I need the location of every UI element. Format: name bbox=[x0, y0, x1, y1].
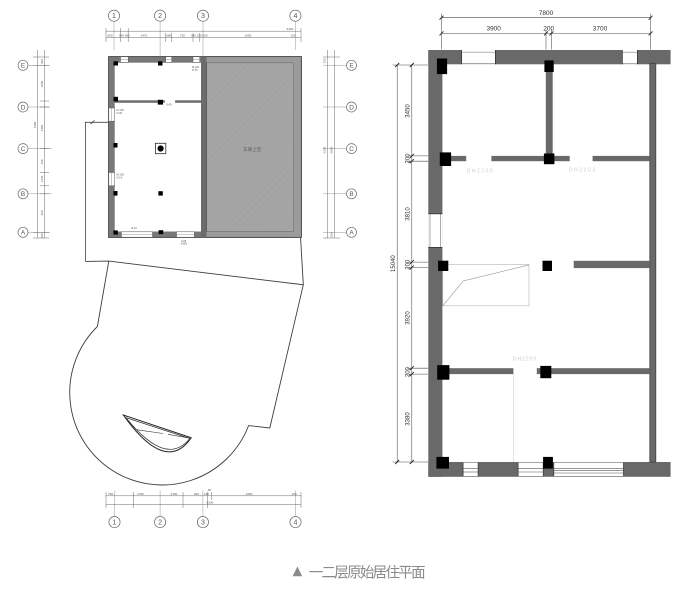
svg-text:N.06: N.06 bbox=[117, 111, 123, 115]
svg-text:90: 90 bbox=[208, 488, 212, 492]
svg-text:3: 3 bbox=[201, 13, 205, 20]
svg-text:300: 300 bbox=[40, 59, 44, 64]
svg-text:200: 200 bbox=[202, 33, 207, 37]
svg-text:1470: 1470 bbox=[141, 33, 148, 37]
svg-text:4: 4 bbox=[293, 13, 297, 20]
svg-text:340 100: 340 100 bbox=[191, 33, 202, 37]
svg-text:1650: 1650 bbox=[245, 33, 252, 37]
svg-text:15040: 15040 bbox=[391, 255, 397, 272]
svg-text:440: 440 bbox=[40, 159, 44, 164]
svg-text:3: 3 bbox=[201, 520, 205, 527]
svg-text:#159: #159 bbox=[181, 242, 187, 246]
svg-text:3450: 3450 bbox=[406, 104, 412, 118]
svg-text:D: D bbox=[349, 104, 354, 111]
svg-text:680: 680 bbox=[166, 33, 171, 37]
svg-text:C: C bbox=[349, 146, 354, 153]
svg-text:E: E bbox=[349, 63, 353, 70]
svg-text:1370: 1370 bbox=[40, 175, 44, 182]
svg-text:N.14: N.14 bbox=[117, 175, 123, 179]
svg-text:DH2200: DH2200 bbox=[467, 169, 494, 175]
svg-text:A: A bbox=[21, 230, 26, 237]
svg-text:460: 460 bbox=[40, 210, 44, 215]
svg-text:150: 150 bbox=[323, 58, 327, 63]
svg-text:6000: 6000 bbox=[330, 146, 334, 153]
svg-text:DH2200: DH2200 bbox=[513, 357, 537, 363]
svg-text:B: B bbox=[21, 191, 25, 198]
svg-text:3700: 3700 bbox=[593, 26, 608, 33]
svg-text:1650: 1650 bbox=[246, 492, 253, 496]
svg-text:200: 200 bbox=[543, 26, 554, 33]
svg-text:6200: 6200 bbox=[207, 501, 214, 505]
svg-text:150: 150 bbox=[330, 232, 334, 237]
svg-text:E: E bbox=[21, 63, 25, 70]
svg-text:3900: 3900 bbox=[486, 26, 501, 33]
svg-text:DH2200: DH2200 bbox=[569, 167, 597, 173]
svg-text:A: A bbox=[349, 230, 354, 237]
svg-text:1500: 1500 bbox=[40, 80, 44, 87]
svg-text:920: 920 bbox=[194, 492, 199, 496]
svg-text:550: 550 bbox=[107, 33, 112, 37]
svg-text:3920: 3920 bbox=[406, 311, 412, 325]
svg-text:200: 200 bbox=[406, 259, 412, 270]
svg-text:B.10: B.10 bbox=[132, 226, 138, 230]
svg-text:2: 2 bbox=[158, 13, 162, 20]
svg-text:200: 200 bbox=[406, 153, 412, 164]
svg-text:车库上空: 车库上空 bbox=[243, 146, 262, 153]
svg-text:730: 730 bbox=[180, 33, 185, 37]
svg-text:1750: 1750 bbox=[137, 492, 144, 496]
svg-text:3380: 3380 bbox=[406, 412, 412, 426]
svg-text:160: 160 bbox=[290, 33, 295, 37]
svg-text:1: 1 bbox=[113, 520, 117, 527]
svg-text:150: 150 bbox=[40, 233, 44, 238]
svg-text:C: C bbox=[21, 146, 26, 153]
svg-text:200: 200 bbox=[406, 366, 412, 377]
svg-text:340 360: 340 360 bbox=[119, 33, 130, 37]
svg-text:2150: 2150 bbox=[171, 492, 178, 496]
svg-text:1460: 1460 bbox=[40, 124, 44, 131]
svg-text:9-09: 9-09 bbox=[167, 103, 173, 107]
svg-text:1: 1 bbox=[112, 13, 116, 20]
svg-text:4180: 4180 bbox=[33, 121, 37, 128]
svg-text:4: 4 bbox=[294, 520, 298, 527]
svg-text:6200: 6200 bbox=[287, 27, 294, 31]
svg-text:6200: 6200 bbox=[323, 146, 327, 153]
svg-text:N.75: N.75 bbox=[192, 68, 198, 72]
svg-text:160: 160 bbox=[291, 492, 296, 496]
svg-text:750: 750 bbox=[108, 492, 113, 496]
svg-text:3810: 3810 bbox=[406, 207, 412, 221]
svg-text:D: D bbox=[21, 104, 26, 111]
svg-text:一二层原始居住平面: 一二层原始居住平面 bbox=[309, 565, 425, 582]
svg-text:B: B bbox=[349, 191, 353, 198]
svg-text:140: 140 bbox=[204, 492, 209, 496]
svg-text:7800: 7800 bbox=[539, 10, 554, 17]
svg-text:2: 2 bbox=[158, 520, 162, 527]
